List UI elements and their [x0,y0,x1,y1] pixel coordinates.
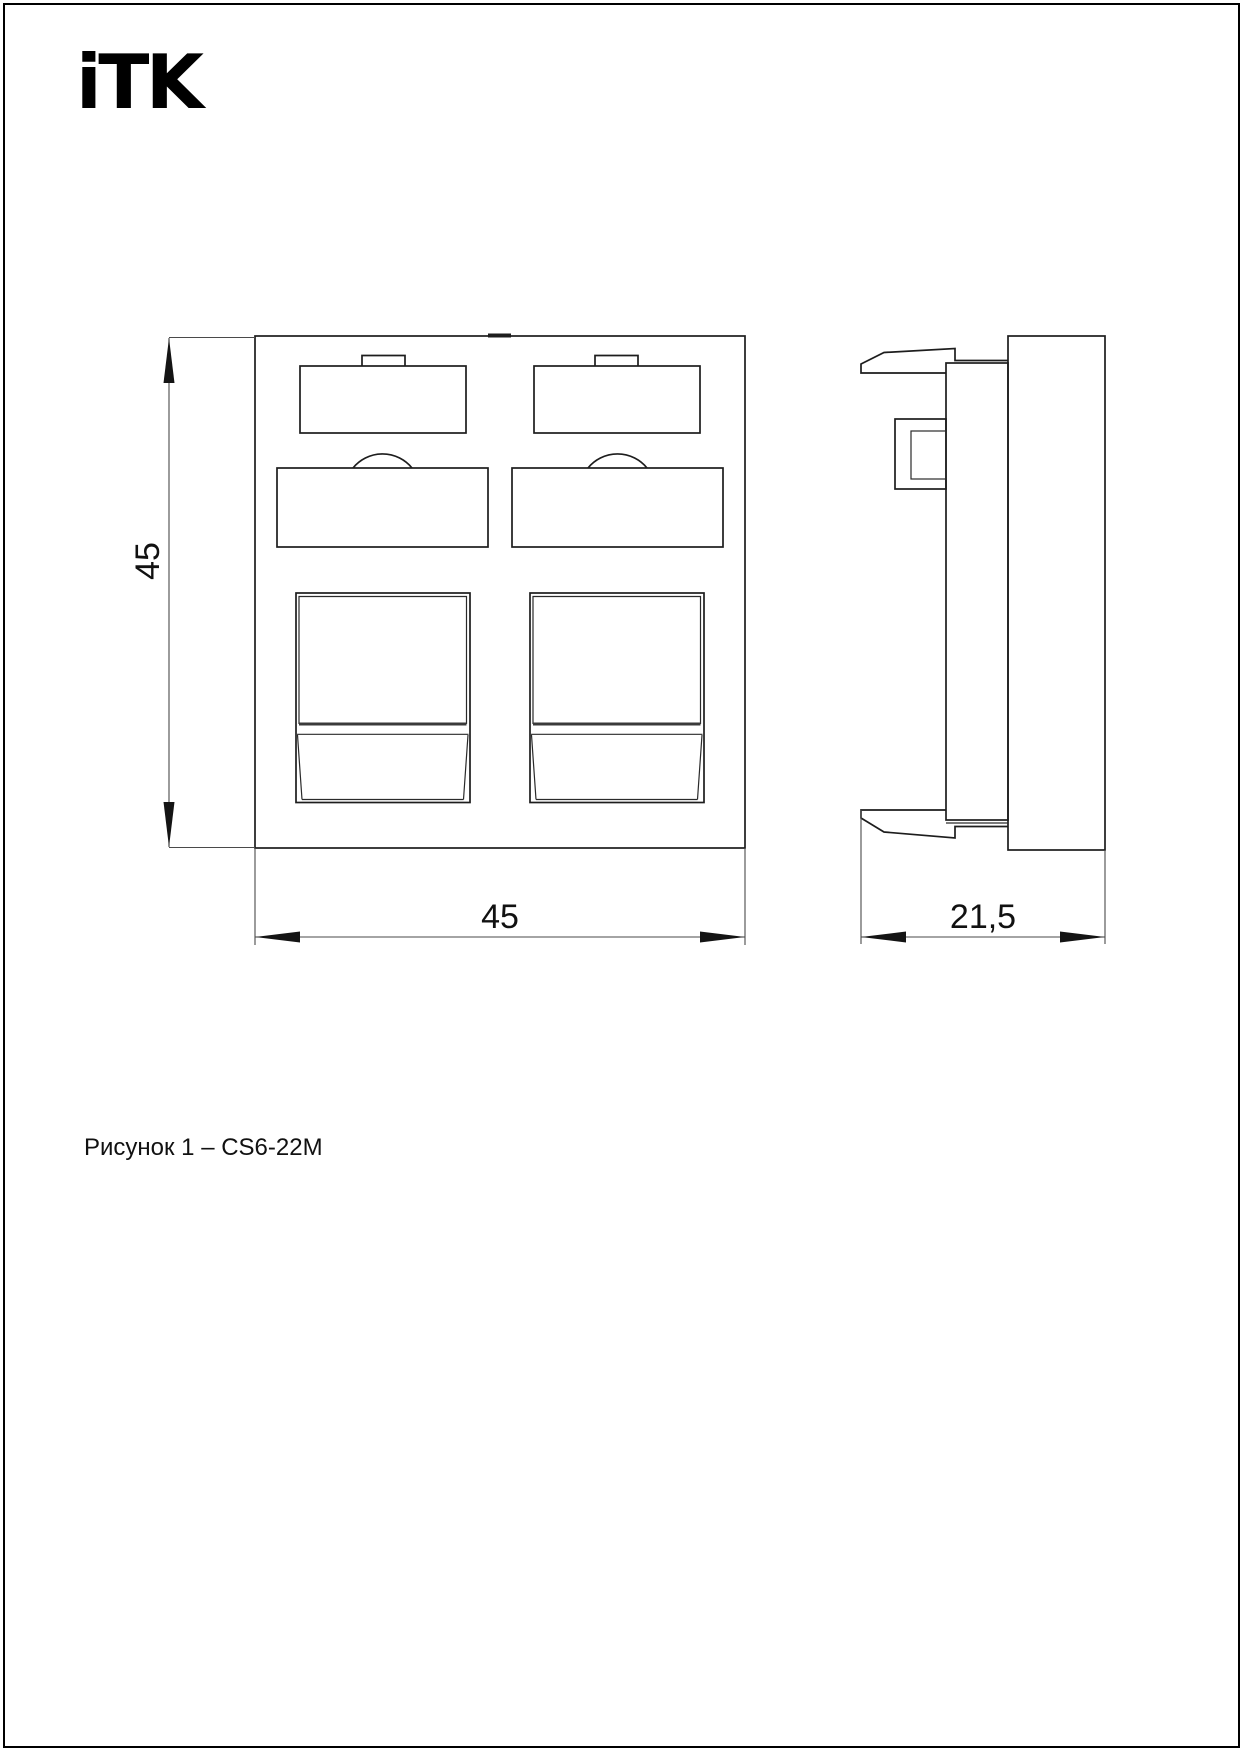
center-notch [488,334,511,338]
dim-depth-arrow-left [861,932,906,943]
label-window-right [534,366,700,433]
finger-arc-left [353,454,412,468]
jack-opening-left [296,593,470,803]
side-bottom-latch-hook [861,810,1008,838]
dim-height-arrow-bottom [164,802,175,847]
side-body-plate [946,363,1008,820]
dim-width-label: 45 [481,898,519,936]
jack-opening-right [530,593,704,803]
dim-height-arrow-top [164,338,175,383]
dim-front-width: 45 [255,848,745,945]
label-window-left [300,366,466,433]
dim-width-arrow-left [255,932,300,943]
label-tab-left [362,356,405,367]
side-view [861,336,1105,850]
dim-side-depth: 21,5 [861,810,1105,944]
dim-height-extension-lines [169,338,255,848]
dim-height-label: 45 [129,542,167,580]
side-top-latch-hook [861,349,1008,374]
finger-arc-right [588,454,647,468]
dim-depth-label: 21,5 [950,898,1016,936]
shutter-window-right [512,468,723,547]
label-tab-right [595,356,638,367]
front-outline [255,336,745,848]
jack-inner-frame-left [299,597,467,725]
technical-drawing: 45 45 21,5 [0,0,1244,1752]
shutter-window-left [277,468,488,547]
jack-frame-left [296,593,470,803]
dim-width-arrow-right [700,932,745,943]
jack-frame-right [530,593,704,803]
jack-shutter-sides-right [532,735,703,800]
jack-shutter-sides-left [298,735,469,800]
front-view [255,334,745,849]
jack-inner-frame-right [533,597,701,725]
drawing-sheet: iTK [0,0,1244,1752]
side-front-panel [1008,336,1105,850]
figure-caption: Рисунок 1 – CS6-22M [84,1134,323,1162]
dim-front-height: 45 [129,338,255,848]
side-clip-window-inner [911,431,946,479]
dim-depth-arrow-right [1060,932,1105,943]
